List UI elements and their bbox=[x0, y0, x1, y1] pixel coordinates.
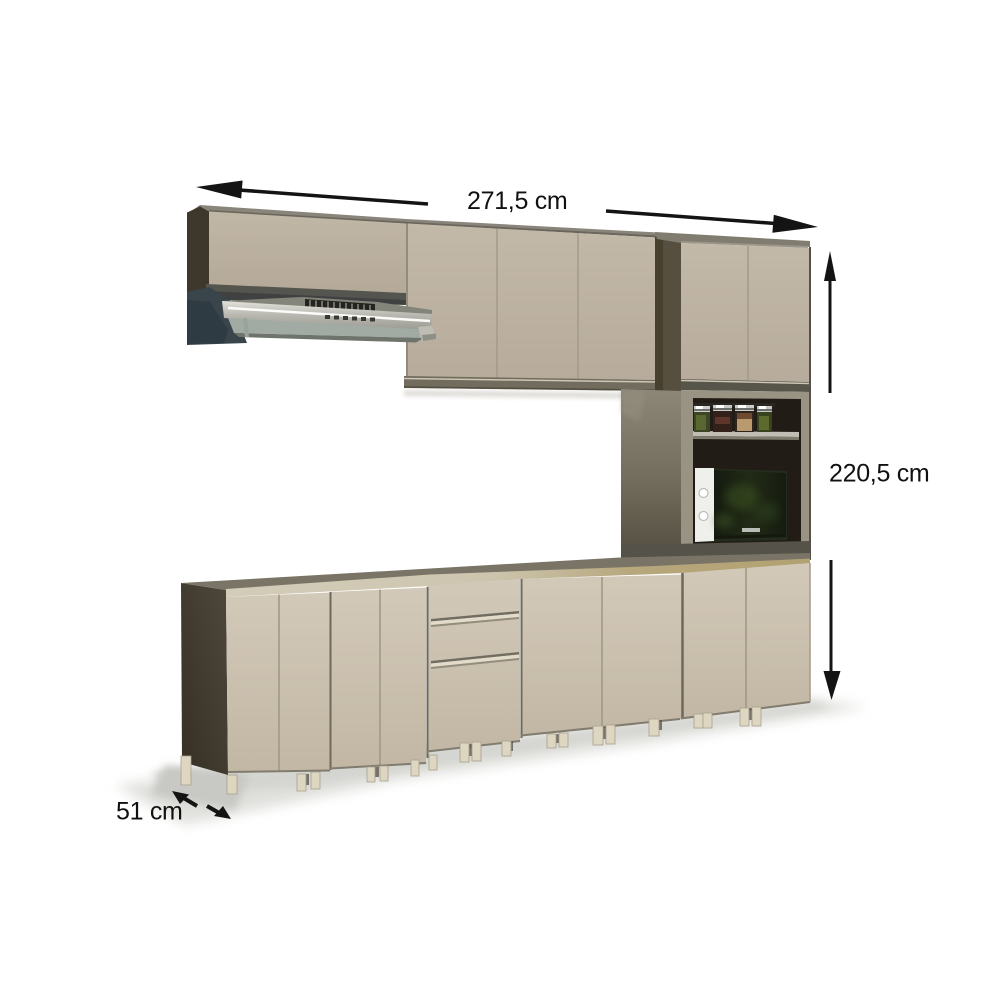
svg-text:220,5 cm: 220,5 cm bbox=[829, 460, 929, 488]
svg-text:51 cm: 51 cm bbox=[116, 798, 183, 826]
svg-text:271,5 cm: 271,5 cm bbox=[467, 187, 567, 215]
